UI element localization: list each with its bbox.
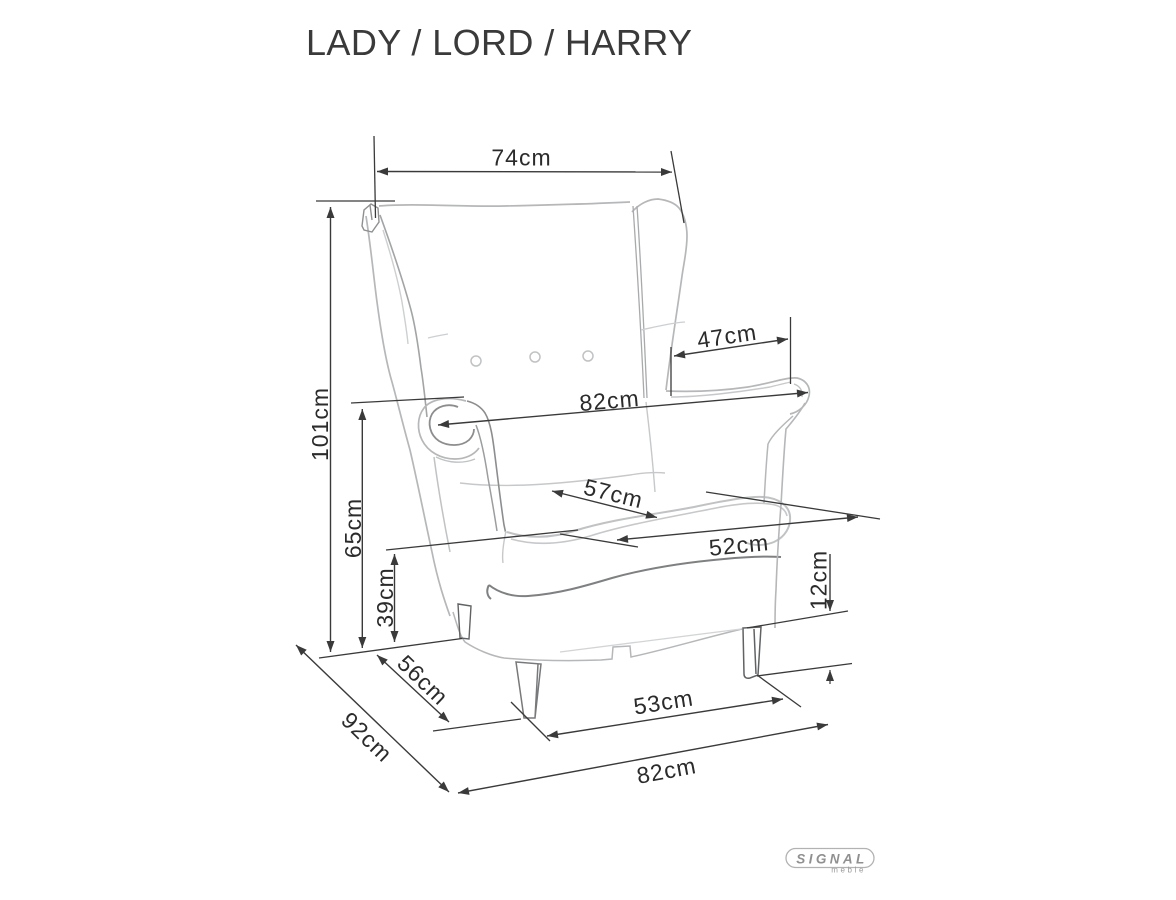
svg-text:12cm: 12cm xyxy=(806,550,832,610)
svg-text:47cm: 47cm xyxy=(695,319,758,354)
svg-text:LADY / LORD / HARRY: LADY / LORD / HARRY xyxy=(306,22,692,63)
svg-text:74cm: 74cm xyxy=(491,145,551,171)
svg-text:meble: meble xyxy=(831,866,866,875)
svg-text:SIGNAL: SIGNAL xyxy=(796,852,867,867)
svg-text:39cm: 39cm xyxy=(372,567,398,627)
svg-text:82cm: 82cm xyxy=(578,385,640,416)
svg-text:82cm: 82cm xyxy=(635,752,699,789)
svg-text:92cm: 92cm xyxy=(336,707,397,768)
svg-text:101cm: 101cm xyxy=(307,387,333,461)
svg-text:57cm: 57cm xyxy=(581,474,646,514)
svg-text:65cm: 65cm xyxy=(340,498,366,558)
svg-text:56cm: 56cm xyxy=(392,650,453,711)
